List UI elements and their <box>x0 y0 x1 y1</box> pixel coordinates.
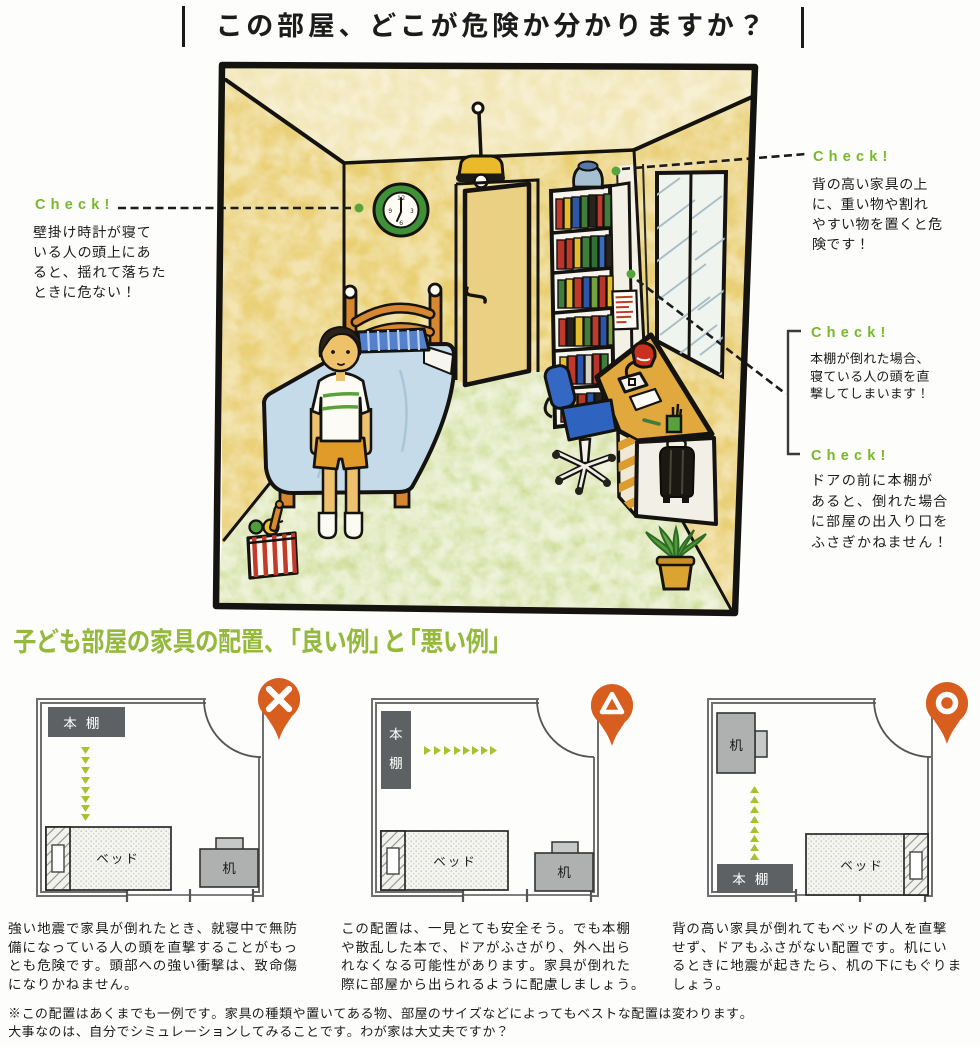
svg-text:本: 本 <box>389 723 403 743</box>
svg-text:3: 3 <box>409 205 414 215</box>
svg-text:9: 9 <box>388 205 392 215</box>
svg-text:ベッド: ベッド <box>840 855 884 874</box>
svg-text:本棚: 本棚 <box>733 868 778 888</box>
svg-text:机: 机 <box>222 857 236 877</box>
svg-text:ベッド: ベッド <box>96 848 140 867</box>
svg-text:棚: 棚 <box>389 752 403 772</box>
svg-text:ベッド: ベッド <box>433 851 477 870</box>
svg-text:机: 机 <box>729 734 743 754</box>
svg-text:机: 机 <box>557 861 571 881</box>
svg-text:6: 6 <box>399 217 403 227</box>
svg-text:本棚: 本棚 <box>64 712 109 732</box>
